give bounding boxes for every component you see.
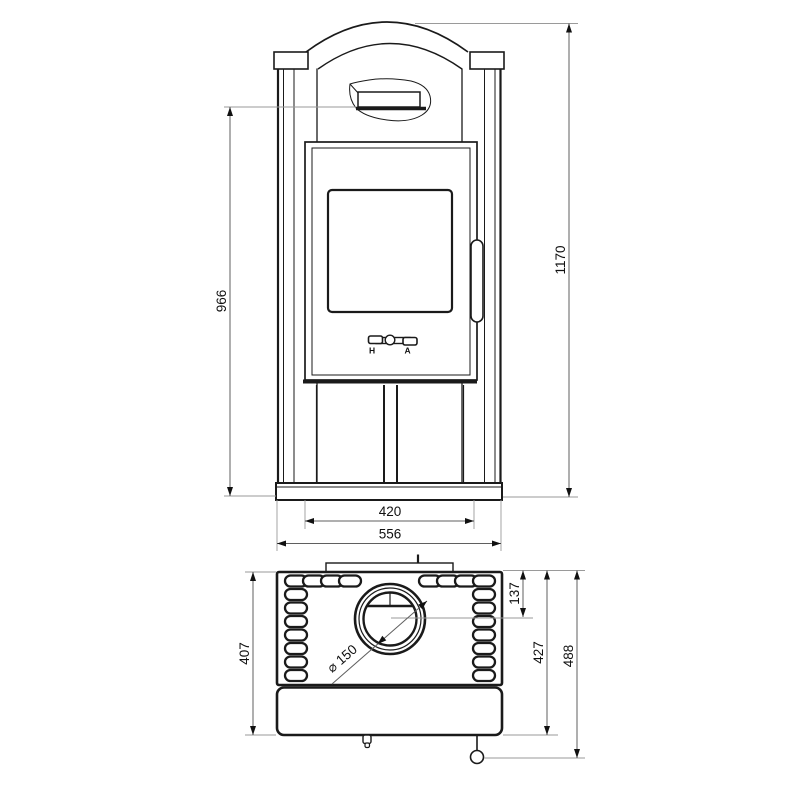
- niche-shelf: [358, 92, 420, 107]
- lever-cap-right: [403, 338, 417, 346]
- lever-label-h: H: [369, 346, 375, 356]
- dim-label-407: 407: [237, 642, 252, 665]
- base-plinth: [276, 483, 502, 500]
- lower-panels: [317, 385, 464, 483]
- dimension-556: 556: [277, 527, 501, 547]
- top-view: [277, 555, 502, 764]
- front-panel: [277, 688, 502, 736]
- warming-niche: [350, 79, 431, 121]
- dimension-966: 966: [214, 107, 233, 496]
- door-handle: [471, 240, 483, 322]
- dim-label-427: 427: [531, 641, 546, 664]
- dim-label-966: 966: [214, 290, 229, 313]
- dimension-488: 488: [561, 571, 580, 759]
- flue-collar: [355, 584, 425, 654]
- top-cap-left: [274, 52, 308, 69]
- stove-door: [303, 142, 483, 382]
- dimension-137: 137: [507, 571, 526, 618]
- lever-label-a: A: [405, 346, 411, 356]
- top-cap-right: [470, 52, 504, 69]
- stove-technical-drawing: H A 966: [0, 0, 800, 800]
- dim-label-137: 137: [507, 582, 522, 605]
- dim-label-556: 556: [379, 527, 402, 542]
- lever-knob: [385, 335, 395, 345]
- dimension-427: 427: [531, 571, 550, 736]
- dimension-1170: 1170: [553, 24, 572, 498]
- dimension-407: 407: [237, 572, 256, 735]
- handle-top-view: [471, 735, 484, 764]
- dimension-420: 420: [305, 504, 474, 524]
- front-view: H A: [274, 22, 504, 500]
- dim-label-488: 488: [561, 645, 576, 668]
- front-knob: [363, 735, 371, 748]
- lever-cap-left: [369, 336, 383, 344]
- dim-label-420: 420: [379, 504, 402, 519]
- arch-inner-line: [318, 44, 462, 70]
- arch-outer-line: [306, 22, 468, 52]
- drawing-svg: H A 966: [0, 0, 800, 800]
- dim-label-1170: 1170: [553, 245, 568, 274]
